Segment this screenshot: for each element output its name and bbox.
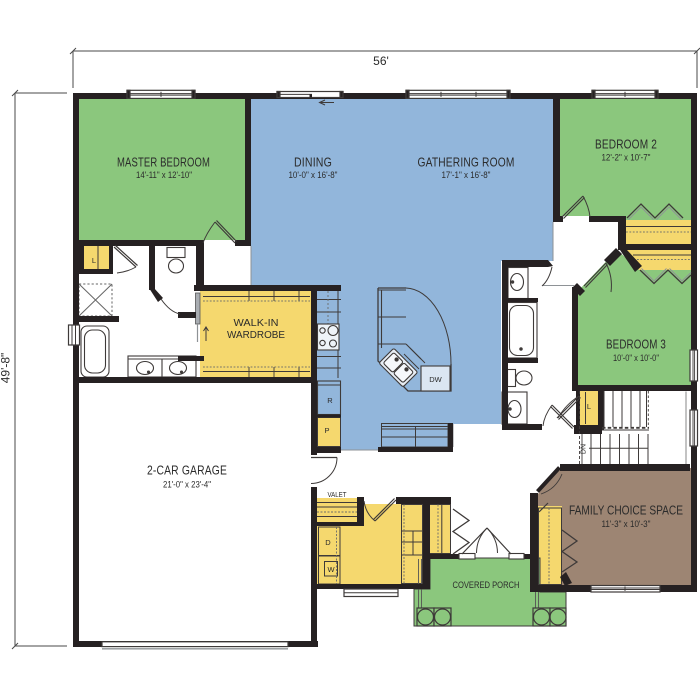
svg-text:BEDROOM 3: BEDROOM 3 bbox=[606, 337, 666, 352]
svg-text:56': 56' bbox=[373, 54, 389, 68]
svg-text:D: D bbox=[325, 538, 331, 547]
svg-text:DN: DN bbox=[581, 444, 588, 454]
svg-text:WARDROBE: WARDROBE bbox=[227, 329, 285, 341]
svg-text:VALET: VALET bbox=[328, 490, 347, 499]
svg-text:21'-0" x 23'-4": 21'-0" x 23'-4" bbox=[163, 480, 211, 490]
svg-text:14'-11" x 12'-10": 14'-11" x 12'-10" bbox=[136, 170, 192, 180]
svg-text:COVERED PORCH: COVERED PORCH bbox=[453, 580, 520, 591]
svg-text:FAMILY CHOICE SPACE: FAMILY CHOICE SPACE bbox=[569, 504, 683, 518]
svg-text:R: R bbox=[327, 396, 333, 405]
svg-text:10'-0" x 10'-0": 10'-0" x 10'-0" bbox=[613, 353, 659, 363]
svg-text:11'-3" x 10'-3": 11'-3" x 10'-3" bbox=[602, 519, 651, 529]
svg-text:MASTER BEDROOM: MASTER BEDROOM bbox=[117, 155, 210, 170]
svg-text:WALK-IN: WALK-IN bbox=[234, 317, 279, 329]
svg-text:DW: DW bbox=[429, 375, 442, 384]
svg-text:10'-0" x 16'-8": 10'-0" x 16'-8" bbox=[289, 170, 338, 180]
svg-text:DINING: DINING bbox=[294, 155, 332, 170]
svg-text:GATHERING ROOM: GATHERING ROOM bbox=[418, 155, 515, 170]
svg-text:L: L bbox=[587, 402, 591, 411]
svg-text:BEDROOM 2: BEDROOM 2 bbox=[595, 137, 657, 152]
svg-text:2-CAR GARAGE: 2-CAR GARAGE bbox=[147, 463, 227, 478]
svg-text:W: W bbox=[327, 565, 335, 574]
svg-text:L: L bbox=[92, 256, 96, 265]
svg-text:12'-2" x 10'-7": 12'-2" x 10'-7" bbox=[602, 153, 651, 163]
svg-text:17'-1" x 16'-8": 17'-1" x 16'-8" bbox=[442, 170, 491, 180]
svg-text:P: P bbox=[324, 426, 329, 435]
svg-text:49'-8": 49'-8" bbox=[0, 353, 13, 384]
